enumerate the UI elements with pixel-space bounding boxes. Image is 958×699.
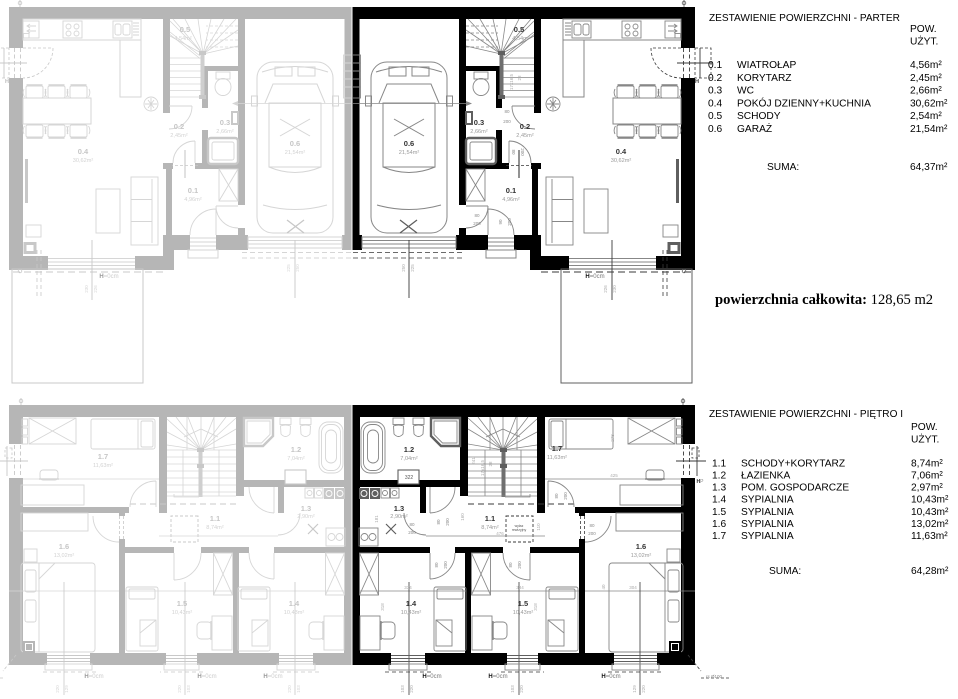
svg-text:181: 181: [374, 515, 379, 523]
svg-text:318: 318: [533, 603, 538, 611]
svg-text:226: 226: [603, 285, 608, 293]
svg-text:8,74m²: 8,74m²: [911, 458, 943, 469]
svg-text:200: 200: [517, 561, 522, 569]
svg-text:powierzchnia całkowita: 128,65: powierzchnia całkowita: 128,65 m2: [715, 292, 933, 308]
svg-text:1.6: 1.6: [636, 542, 646, 551]
svg-text:13,02m²: 13,02m²: [911, 519, 949, 530]
svg-text:80: 80: [504, 109, 510, 114]
svg-text:2,66m²: 2,66m²: [910, 86, 942, 97]
svg-text:1.1: 1.1: [210, 514, 220, 523]
svg-text:0.6: 0.6: [404, 139, 414, 148]
svg-text:SUMA:: SUMA:: [767, 162, 799, 173]
svg-text:H=0cm: H=0cm: [84, 674, 103, 680]
svg-text:90: 90: [498, 219, 503, 225]
svg-text:225: 225: [410, 264, 415, 272]
svg-text:220: 220: [177, 685, 182, 693]
svg-text:1.2: 1.2: [712, 471, 726, 482]
svg-text:11,63m²: 11,63m²: [547, 455, 567, 461]
svg-text:200: 200: [445, 518, 450, 526]
svg-text:220: 220: [641, 685, 646, 693]
svg-text:230: 230: [84, 285, 89, 293]
svg-text:21,54m²: 21,54m²: [399, 150, 420, 156]
svg-text:304: 304: [629, 585, 637, 590]
svg-text:476: 476: [496, 531, 504, 536]
svg-text:H=0cm: H=0cm: [585, 274, 604, 280]
svg-text:103: 103: [400, 685, 405, 693]
svg-text:1.3: 1.3: [301, 504, 311, 513]
svg-text:10,43m²: 10,43m²: [911, 507, 949, 518]
svg-text:28: 28: [488, 461, 493, 467]
svg-text:POM. GOSPODARCZE: POM. GOSPODARCZE: [741, 483, 849, 494]
svg-text:0.5: 0.5: [708, 111, 722, 122]
svg-text:4,54m²: 4,54m²: [174, 36, 192, 42]
svg-text:230: 230: [612, 285, 617, 293]
svg-text:64,37m²: 64,37m²: [910, 162, 948, 173]
svg-text:0.6: 0.6: [708, 124, 722, 135]
svg-text:30,62m²: 30,62m²: [611, 158, 632, 164]
svg-text:11,63m²: 11,63m²: [911, 531, 948, 542]
svg-text:200: 200: [588, 531, 596, 536]
svg-text:278: 278: [610, 434, 615, 442]
svg-text:11,63m²: 11,63m²: [93, 463, 113, 469]
svg-text:rewizyjny: rewizyjny: [512, 528, 527, 532]
svg-text:1.4: 1.4: [406, 599, 417, 608]
svg-text:0.3: 0.3: [474, 118, 484, 127]
svg-text:80: 80: [434, 562, 439, 568]
svg-text:KORYTARZ: KORYTARZ: [737, 73, 792, 84]
svg-text:30,62m²: 30,62m²: [910, 98, 948, 109]
svg-text:ZESTAWIENIE POWIERZCHNI - PART: ZESTAWIENIE POWIERZCHNI - PARTER: [709, 13, 900, 24]
svg-text:103: 103: [510, 685, 515, 693]
svg-text:200: 200: [507, 218, 512, 226]
svg-text:10,43m²: 10,43m²: [172, 610, 193, 616]
svg-text:UŻYT.: UŻYT.: [910, 35, 938, 48]
svg-text:241: 241: [471, 457, 476, 465]
svg-text:103: 103: [296, 685, 301, 693]
svg-text:SCHODY+KORYTARZ: SCHODY+KORYTARZ: [741, 458, 845, 469]
svg-text:200: 200: [473, 221, 481, 226]
svg-text:2,66m²: 2,66m²: [470, 129, 488, 135]
svg-text:129: 129: [632, 685, 637, 693]
svg-text:WIATROŁAP: WIATROŁAP: [737, 60, 796, 71]
svg-text:4,96m²: 4,96m²: [184, 197, 202, 203]
svg-text:H=0cm: H=0cm: [601, 674, 620, 680]
svg-text:28: 28: [517, 75, 522, 81]
svg-text:1.2: 1.2: [404, 445, 414, 454]
svg-text:200: 200: [503, 119, 511, 124]
svg-text:220: 220: [409, 685, 414, 693]
svg-text:2,66m²: 2,66m²: [216, 129, 234, 135]
svg-text:80: 80: [508, 562, 513, 568]
svg-text:80: 80: [511, 149, 516, 155]
svg-text:30,62m²: 30,62m²: [73, 158, 94, 164]
svg-text:0.1: 0.1: [708, 60, 722, 71]
svg-text:ŁAZIENKA: ŁAZIENKA: [741, 471, 790, 482]
svg-text:17x16,5: 17x16,5: [480, 459, 485, 476]
svg-text:1.4: 1.4: [289, 599, 300, 608]
svg-text:0.5: 0.5: [514, 25, 524, 34]
svg-text:H=0cm: H=0cm: [99, 274, 118, 280]
svg-text:103: 103: [186, 685, 191, 693]
svg-text:0.4: 0.4: [708, 98, 722, 109]
svg-text:0.1: 0.1: [506, 186, 516, 195]
svg-text:2,54m²: 2,54m²: [910, 111, 942, 122]
svg-text:21,54m²: 21,54m²: [285, 150, 306, 156]
svg-text:0.2: 0.2: [174, 122, 184, 131]
svg-text:H=0cm: H=0cm: [197, 674, 216, 680]
svg-text:220: 220: [287, 685, 292, 693]
svg-text:110: 110: [536, 523, 541, 531]
svg-text:0.2: 0.2: [708, 73, 722, 84]
svg-text:0.4: 0.4: [616, 147, 627, 156]
svg-text:0.5: 0.5: [180, 25, 190, 34]
svg-text:10,43m²: 10,43m²: [401, 610, 422, 616]
svg-text:13,02m²: 13,02m²: [54, 553, 75, 559]
svg-text:GARAŻ: GARAŻ: [737, 122, 772, 135]
svg-text:80: 80: [436, 519, 441, 525]
svg-text:0.3: 0.3: [708, 86, 722, 97]
svg-text:1.7: 1.7: [98, 452, 108, 461]
svg-text:2,90m²: 2,90m²: [390, 514, 408, 520]
svg-text:1.6: 1.6: [59, 542, 69, 551]
svg-text:80: 80: [589, 523, 595, 528]
svg-text:HP: HP: [697, 479, 705, 485]
svg-text:rs Ø100: rs Ø100: [706, 674, 723, 679]
svg-text:SYPIALNIA: SYPIALNIA: [741, 531, 794, 542]
svg-text:4,96m²: 4,96m²: [502, 197, 520, 203]
svg-text:0.6: 0.6: [290, 139, 300, 148]
svg-text:129: 129: [64, 685, 69, 693]
svg-text:POW.: POW.: [911, 422, 938, 433]
svg-text:2,90m²: 2,90m²: [297, 514, 315, 520]
svg-text:10,43m²: 10,43m²: [911, 495, 949, 506]
svg-text:1.7: 1.7: [712, 531, 726, 542]
svg-text:H=0cm: H=0cm: [422, 674, 441, 680]
svg-text:POW.: POW.: [910, 24, 937, 35]
svg-text:0.1: 0.1: [188, 186, 198, 195]
svg-text:318: 318: [380, 603, 385, 611]
svg-text:7,04m²: 7,04m²: [400, 456, 418, 462]
svg-text:1.7: 1.7: [552, 444, 562, 453]
svg-text:1.2: 1.2: [291, 445, 301, 454]
svg-text:1.5: 1.5: [518, 599, 528, 608]
svg-text:17x16,5: 17x16,5: [509, 73, 514, 90]
svg-text:220: 220: [519, 685, 524, 693]
svg-text:1.3: 1.3: [712, 483, 726, 494]
svg-text:200: 200: [563, 492, 568, 500]
svg-text:21,54m²: 21,54m²: [910, 124, 948, 135]
svg-text:7,06m²: 7,06m²: [911, 471, 943, 482]
svg-text:2,45m²: 2,45m²: [516, 133, 534, 139]
svg-text:UŻYT.: UŻYT.: [911, 433, 939, 446]
svg-text:160: 160: [460, 513, 465, 521]
svg-text:1.6: 1.6: [712, 519, 726, 530]
svg-text:H=0cm: H=0cm: [488, 674, 507, 680]
svg-text:64,28m²: 64,28m²: [911, 566, 949, 577]
svg-text:2,45m²: 2,45m²: [170, 133, 188, 139]
svg-text:10,43m²: 10,43m²: [284, 610, 305, 616]
svg-text:40: 40: [601, 584, 606, 590]
svg-text:200: 200: [443, 561, 448, 569]
svg-text:425: 425: [610, 473, 618, 478]
svg-text:250: 250: [401, 264, 406, 272]
svg-text:H: H: [5, 79, 9, 85]
svg-text:334: 334: [516, 585, 524, 590]
svg-text:1.4: 1.4: [712, 495, 726, 506]
svg-text:0.2: 0.2: [520, 122, 530, 131]
svg-text:ZESTAWIENIE POWIERZCHNI - PIĘT: ZESTAWIENIE POWIERZCHNI - PIĘTRO I: [709, 409, 903, 420]
svg-text:80: 80: [554, 493, 559, 499]
svg-text:7,04m²: 7,04m²: [287, 456, 305, 462]
svg-text:SUMA:: SUMA:: [769, 566, 801, 577]
svg-text:1.5: 1.5: [177, 599, 187, 608]
svg-text:1.1: 1.1: [485, 514, 495, 523]
svg-text:0.4: 0.4: [78, 147, 89, 156]
svg-text:2,45m²: 2,45m²: [910, 73, 942, 84]
svg-text:200: 200: [520, 148, 525, 156]
svg-text:250: 250: [295, 264, 300, 272]
svg-text:SYPIALNIA: SYPIALNIA: [741, 507, 794, 518]
svg-text:80: 80: [409, 522, 415, 527]
svg-text:334: 334: [404, 585, 412, 590]
svg-text:1.3: 1.3: [394, 504, 404, 513]
svg-text:8,74m²: 8,74m²: [206, 525, 224, 531]
svg-text:0.3: 0.3: [220, 118, 230, 127]
svg-text:13,02m²: 13,02m²: [631, 553, 652, 559]
svg-text:226: 226: [93, 285, 98, 293]
svg-text:1.5: 1.5: [712, 507, 726, 518]
svg-text:80: 80: [474, 213, 480, 218]
svg-text:SCHODY: SCHODY: [737, 111, 781, 122]
svg-text:SYPIALNIA: SYPIALNIA: [741, 495, 794, 506]
svg-text:4,56m²: 4,56m²: [910, 60, 942, 71]
svg-text:322: 322: [405, 475, 414, 481]
svg-text:10,43m²: 10,43m²: [513, 610, 534, 616]
svg-text:225: 225: [286, 264, 291, 272]
svg-text:4,54m²: 4,54m²: [512, 36, 530, 42]
svg-text:H: H: [695, 79, 699, 85]
svg-text:POKÓJ DZIENNY+KUCHNIA: POKÓJ DZIENNY+KUCHNIA: [737, 96, 871, 109]
svg-text:H=0cm: H=0cm: [263, 674, 282, 680]
svg-text:WC: WC: [737, 86, 754, 97]
svg-text:220: 220: [55, 685, 60, 693]
svg-text:200: 200: [408, 530, 416, 535]
svg-text:2,97m²: 2,97m²: [911, 483, 943, 494]
svg-text:SYPIALNIA: SYPIALNIA: [741, 519, 794, 530]
svg-text:1.1: 1.1: [712, 458, 726, 469]
